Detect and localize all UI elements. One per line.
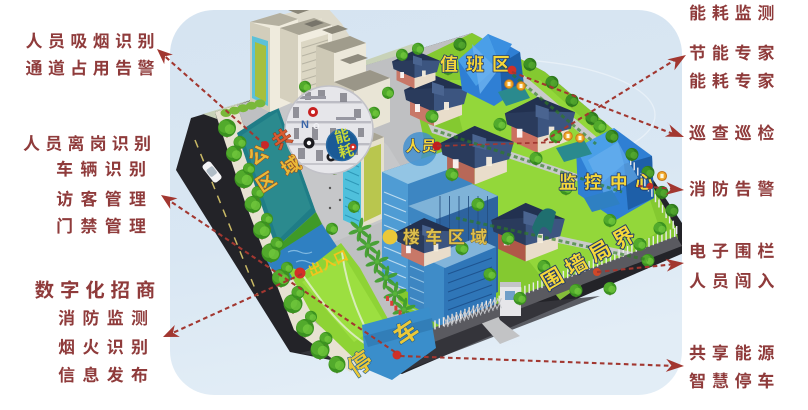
svg-text:o: o — [313, 120, 320, 132]
svg-text:N: N — [301, 119, 309, 131]
